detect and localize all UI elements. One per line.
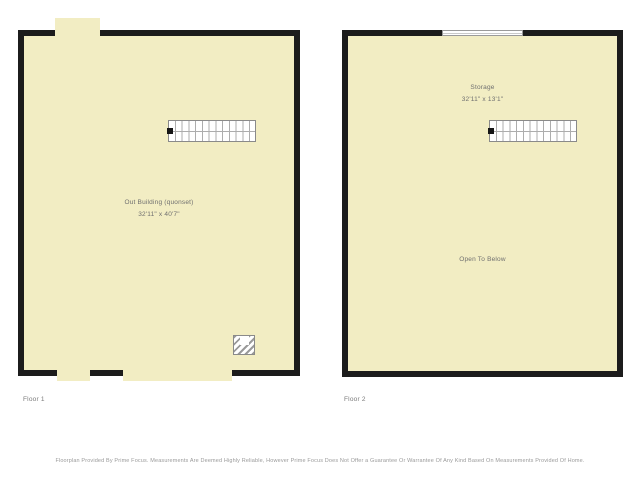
floor2-caption: Floor 2	[344, 396, 366, 403]
room-dimensions: 32'11" x 40'7"	[18, 209, 300, 221]
floor1-bottom-door-opening-small	[57, 369, 90, 381]
floor1-bottom-door-opening-large	[123, 369, 232, 381]
stairs-icon	[168, 120, 256, 142]
room-name: Out Building (quonset)	[18, 197, 300, 209]
stairs-direction-marker	[167, 128, 173, 134]
room-dimensions: 32'11" x 13'1"	[342, 94, 623, 106]
window-icon	[442, 30, 523, 36]
furnace-notch	[240, 336, 249, 345]
stairs-icon	[489, 120, 577, 142]
open-to-below-note: Open To Below	[342, 256, 623, 263]
floor2-room-label: Storage 32'11" x 13'1"	[342, 82, 623, 106]
floor1-caption: Floor 1	[23, 396, 45, 403]
floorplan-canvas: Out Building (quonset) 32'11" x 40'7" Fl…	[0, 0, 640, 480]
window-pane-line	[443, 33, 522, 34]
room-name: Storage	[342, 82, 623, 94]
floor1-top-door-opening	[55, 18, 100, 37]
floor1-room-label: Out Building (quonset) 32'11" x 40'7"	[18, 197, 300, 221]
floor1-plan: Out Building (quonset) 32'11" x 40'7"	[18, 30, 300, 376]
furnace-icon	[233, 335, 255, 355]
floor2-plan: Storage 32'11" x 13'1" Open To Below	[342, 30, 623, 377]
stairs-direction-marker	[488, 128, 494, 134]
disclaimer-text: Floorplan Provided By Prime Focus. Measu…	[0, 458, 640, 464]
